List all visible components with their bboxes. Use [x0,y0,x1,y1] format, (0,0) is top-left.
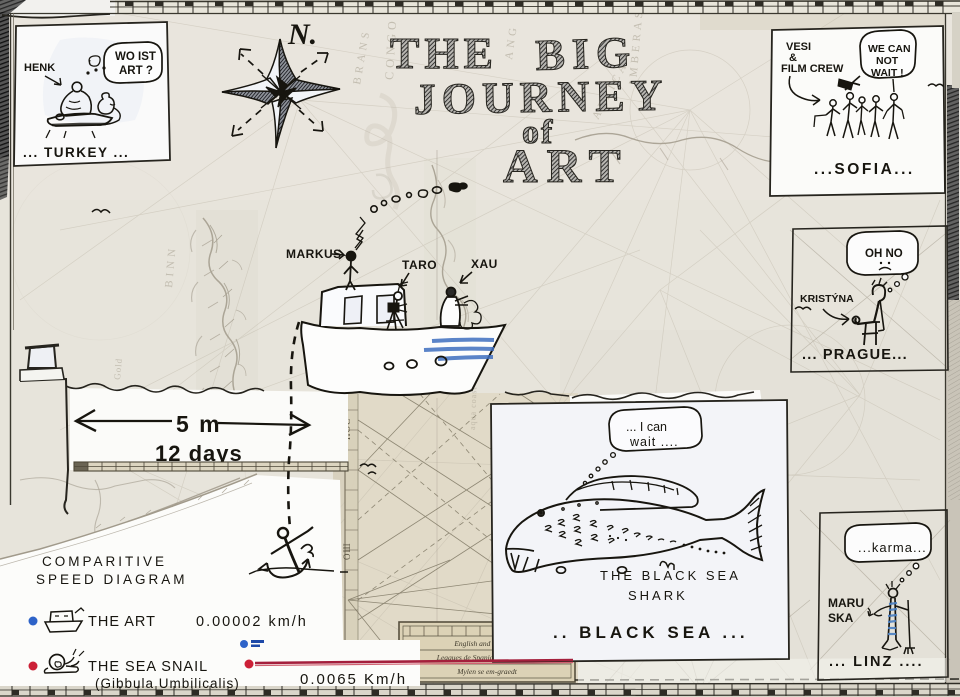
svg-text:THE: THE [390,29,498,78]
svg-text:THE SEA SNAIL: THE SEA SNAIL [88,659,208,675]
svg-text:ART ?: ART ? [119,65,153,77]
svg-text:5 m: 5 m [176,411,222,437]
svg-text:... PRAGUE...: ... PRAGUE... [802,347,908,363]
svg-text:XAU: XAU [471,257,498,271]
svg-text:(Gibbula Umbilicalis): (Gibbula Umbilicalis) [95,676,240,691]
svg-text:KRISTÝNA: KRISTÝNA [800,292,854,305]
svg-text:...karma...: ...karma... [858,540,927,555]
svg-text:... I can: ... I can [626,420,667,434]
svg-text:ОШ: ОШ [342,542,352,560]
svg-text:HENK: HENK [24,62,55,74]
svg-text:... LINZ ....: ... LINZ .... [829,654,923,670]
svg-text:wait ....: wait .... [629,435,679,449]
svg-text:0.0065 Km/h: 0.0065 Km/h [300,671,407,688]
svg-text:THE BLACK SEA: THE BLACK SEA [600,568,741,583]
svg-text:... TURKEY ...: ... TURKEY ... [23,145,129,160]
svg-text:aqua coast: aqua coast [468,386,479,430]
svg-text:N.: N. [287,18,317,51]
svg-text:0.00002 km/h: 0.00002 km/h [196,614,308,630]
svg-text:Mylen se em-graedt: Mylen se em-graedt [456,667,517,676]
svg-text:OH NO: OH NO [865,248,903,260]
svg-text:FILM CREW: FILM CREW [781,63,844,75]
svg-text:Gold: Gold [112,357,124,380]
svg-text:WO IST: WO IST [115,51,156,63]
svg-text:.. BLACK SEA ...: .. BLACK SEA ... [553,623,749,642]
svg-text:WE CAN: WE CAN [868,43,911,55]
svg-text:ART: ART [503,140,630,193]
svg-text:NOT: NOT [876,55,899,67]
svg-text:WAIT !: WAIT ! [871,67,904,79]
svg-text:COMPARITIVE: COMPARITIVE [42,554,167,569]
svg-text:SPEED DIAGRAM: SPEED DIAGRAM [36,572,188,587]
svg-text:TARO: TARO [402,258,437,272]
svg-text:THE ART: THE ART [88,614,156,630]
svg-text:SHARK: SHARK [628,588,688,603]
svg-text:MARU: MARU [828,596,864,610]
svg-text:SKA: SKA [828,611,854,625]
svg-text:...SOFIA...: ...SOFIA... [814,161,915,178]
